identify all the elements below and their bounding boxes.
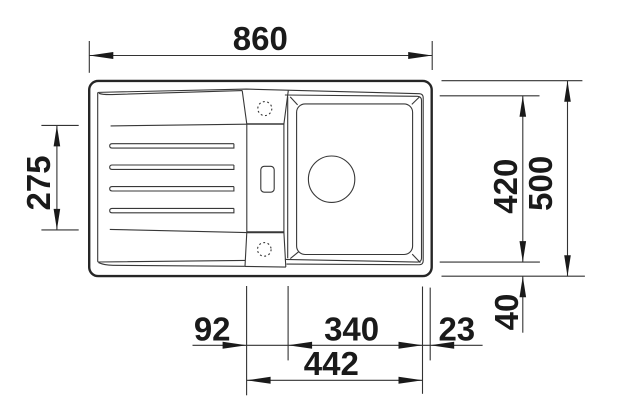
svg-text:340: 340 xyxy=(324,311,379,348)
svg-text:92: 92 xyxy=(194,310,231,347)
svg-text:442: 442 xyxy=(304,345,359,382)
svg-text:275: 275 xyxy=(20,155,57,210)
svg-text:500: 500 xyxy=(522,156,559,211)
svg-text:40: 40 xyxy=(488,294,525,331)
svg-text:23: 23 xyxy=(438,310,475,347)
svg-text:860: 860 xyxy=(233,20,288,57)
svg-text:420: 420 xyxy=(487,159,524,214)
